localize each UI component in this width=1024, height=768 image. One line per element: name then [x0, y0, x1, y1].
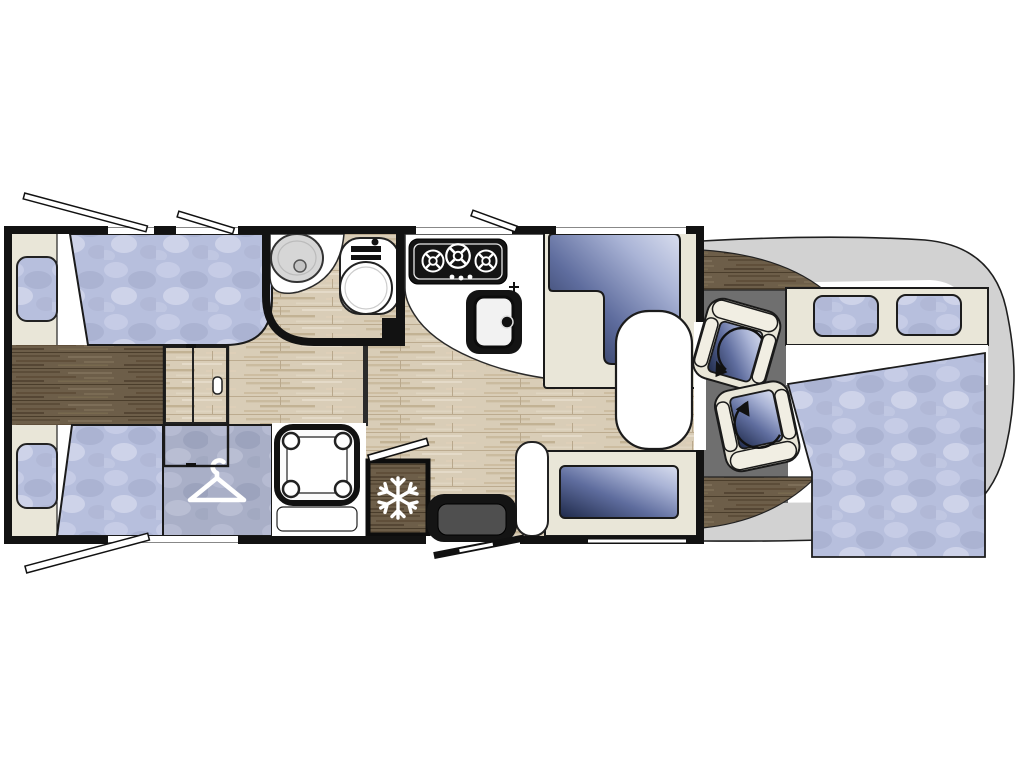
cab-bulkhead-top — [696, 226, 704, 324]
three-burner-hob — [409, 239, 507, 284]
entry-step — [427, 494, 517, 542]
dinette-table — [616, 311, 692, 449]
twin-bed-bottom — [57, 425, 163, 536]
door-handle — [213, 377, 222, 394]
sink-tap — [501, 316, 513, 328]
rear-walkway-dark-wood — [12, 345, 163, 425]
pillow-top — [17, 257, 57, 321]
drop-down-bed-mattress — [788, 353, 985, 557]
cab-window-right — [897, 295, 961, 335]
drop-down-bed — [786, 288, 988, 557]
dinette — [516, 229, 697, 536]
floorplan-canvas — [0, 0, 1024, 768]
basin-drain — [294, 260, 306, 272]
tray-corner-cap — [335, 433, 351, 449]
pillow-bottom — [17, 444, 57, 508]
washroom-right-wall — [396, 226, 405, 326]
toilet — [340, 238, 399, 314]
passenger-swivel-seat — [712, 378, 802, 474]
fridge — [368, 461, 428, 535]
tray-corner-cap — [283, 433, 299, 449]
cab-bulkhead-bottom — [696, 450, 704, 544]
oval-washbasin — [271, 234, 323, 282]
motorhome-floorplan — [0, 0, 1024, 768]
side-bench-cushion — [560, 466, 678, 518]
entry-pillar — [516, 442, 548, 536]
twin-bed-top — [70, 234, 272, 345]
tray-corner-cap — [283, 481, 299, 497]
shower-room — [272, 423, 366, 536]
cab-window-left — [814, 296, 878, 336]
tray-corner-cap — [335, 481, 351, 497]
kitchen-sink — [466, 282, 522, 354]
toilet-bowl — [340, 262, 392, 314]
shower-ledge — [277, 507, 357, 531]
window-opening-indicator — [23, 193, 147, 232]
rear-wall — [4, 226, 12, 544]
shower-wall-stub — [363, 346, 368, 426]
